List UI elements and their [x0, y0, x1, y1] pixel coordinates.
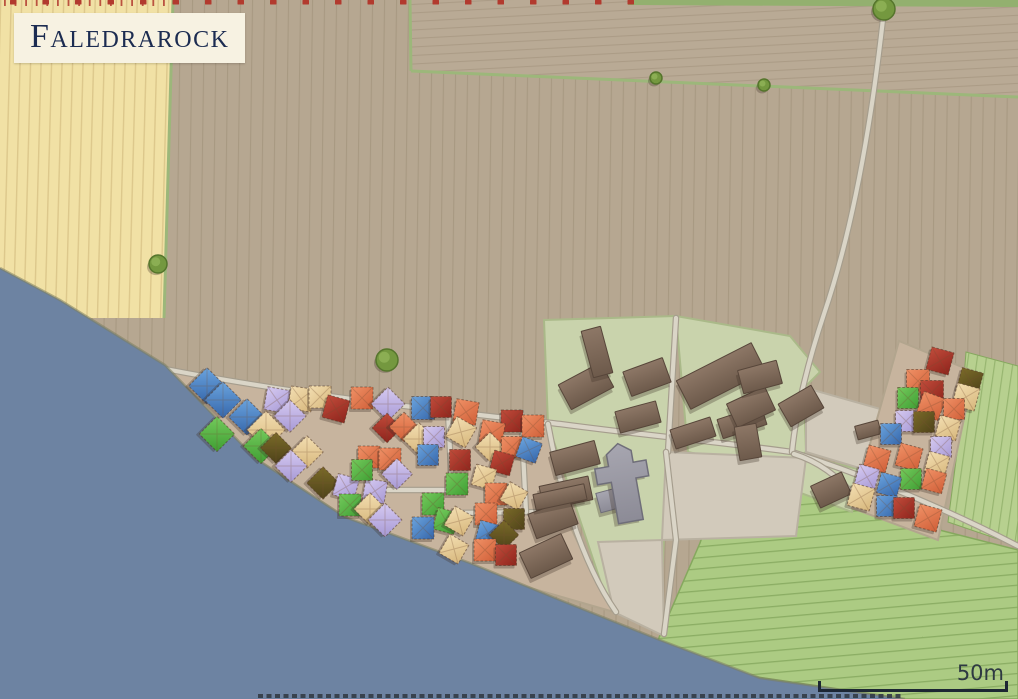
red-boundary-mark — [628, 0, 635, 5]
red-boundary-mark — [238, 0, 245, 5]
field-tick-mark — [99, 0, 101, 6]
house-green — [350, 460, 373, 484]
house-green — [444, 473, 468, 498]
house-red — [429, 397, 452, 421]
red-boundary-mark — [270, 0, 277, 5]
red-boundary-mark — [173, 0, 180, 5]
field-tick-mark — [121, 0, 123, 6]
red-boundary-mark — [205, 0, 212, 5]
house-orange — [349, 387, 373, 412]
house-green — [896, 388, 919, 412]
red-boundary-mark — [43, 0, 50, 5]
field-tick-mark — [163, 0, 165, 6]
field-tick-mark — [36, 0, 38, 6]
village-map-svg — [0, 0, 1018, 699]
red-boundary-mark — [108, 0, 115, 5]
house-orange — [472, 539, 496, 564]
red-boundary-mark — [530, 0, 537, 5]
map-title-text: Faledrarock — [30, 18, 229, 55]
red-boundary-mark — [140, 0, 147, 5]
house-green — [899, 469, 922, 493]
bare-plot — [662, 452, 806, 540]
house-red — [892, 498, 915, 522]
scale-bar: 50m — [818, 681, 1008, 692]
map-title-label: Faledrarock — [14, 13, 245, 63]
red-boundary-mark — [75, 0, 82, 5]
red-boundary-mark — [400, 0, 407, 5]
field-tick-mark — [131, 0, 133, 6]
map-canvas[interactable]: Faledrarock 50m — [0, 0, 1018, 699]
field-tick-mark — [57, 0, 59, 6]
scale-label: 50m — [957, 661, 1004, 685]
red-boundary-mark — [303, 0, 310, 5]
red-boundary-mark — [335, 0, 342, 5]
house-blue — [410, 517, 434, 542]
red-boundary-mark — [433, 0, 440, 5]
house-red — [494, 545, 517, 569]
house-olive — [912, 412, 935, 436]
red-boundary-mark — [368, 0, 375, 5]
house-blue — [879, 424, 902, 448]
field-tick-mark — [4, 0, 6, 6]
red-boundary-mark — [563, 0, 570, 5]
red-boundary-mark — [10, 0, 17, 5]
house-orange — [520, 415, 544, 440]
red-boundary-mark — [465, 0, 472, 5]
field-tick-mark — [25, 0, 27, 6]
field-tick-mark — [152, 0, 154, 6]
red-boundary-mark — [595, 0, 602, 5]
field-tick-mark — [89, 0, 91, 6]
house-blue — [416, 445, 439, 469]
field-tick-mark — [68, 0, 70, 6]
red-boundary-mark — [498, 0, 505, 5]
house-red — [448, 450, 471, 474]
